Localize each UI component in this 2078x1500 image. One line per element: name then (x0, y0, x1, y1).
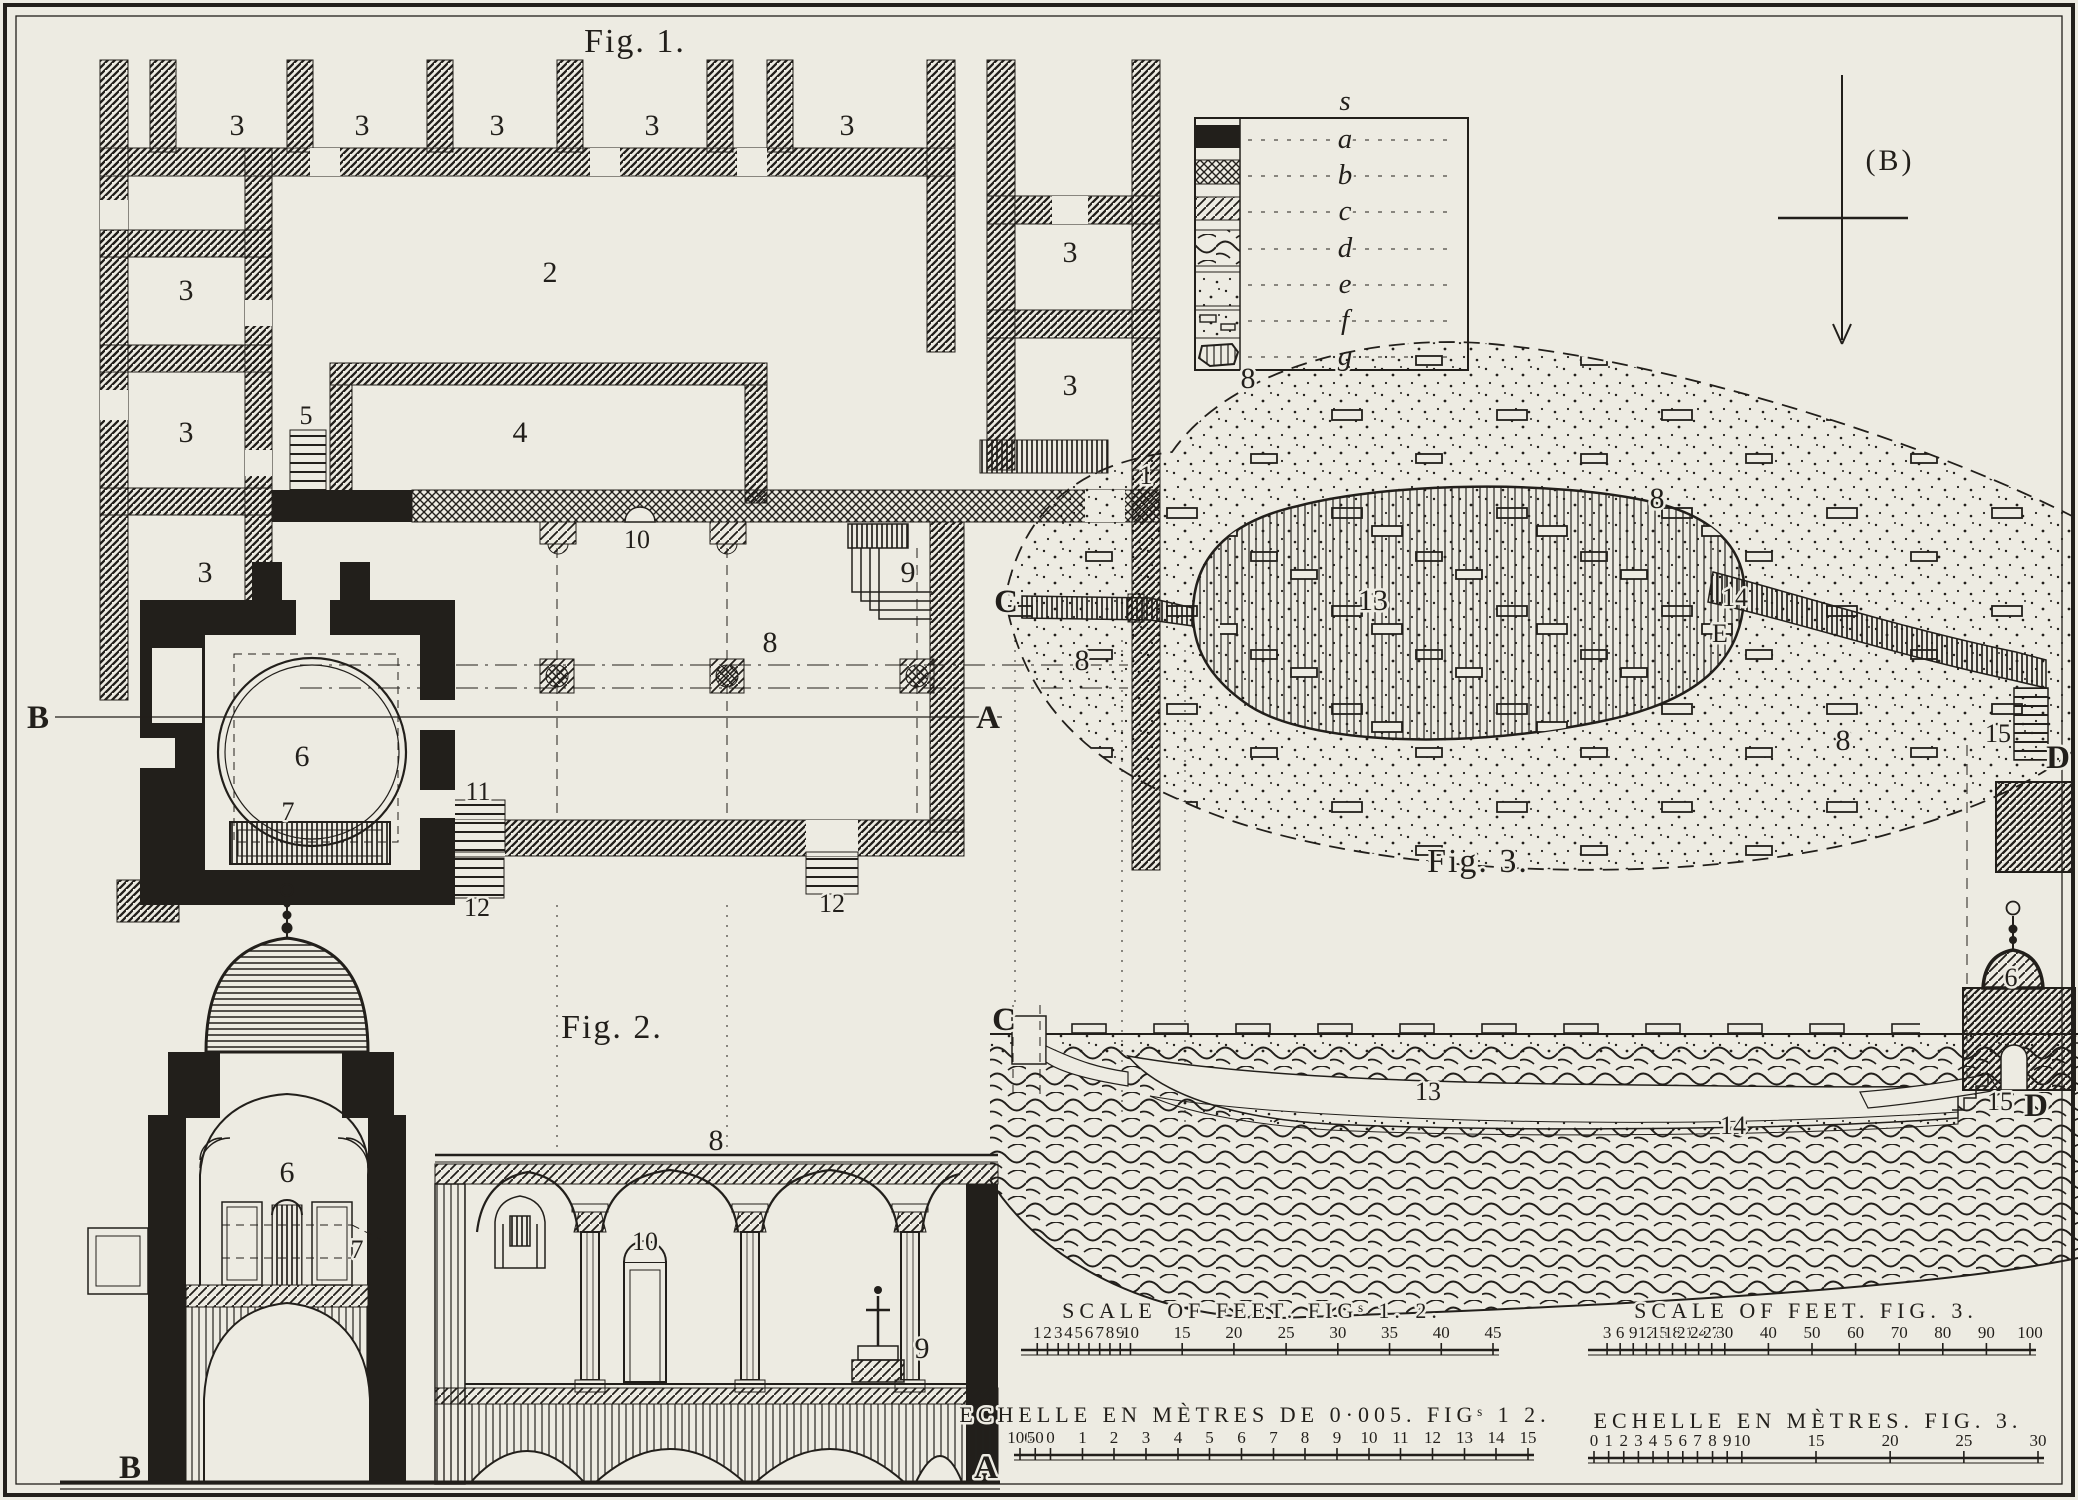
scale-bar-metres12: 100500123456789101112131415 (1007, 1428, 1536, 1460)
marker-D-plan: D (2046, 740, 2070, 776)
room-label-3: 3 (1063, 369, 1078, 402)
legend-letter-c: c (1339, 195, 1352, 227)
scale-bar-feet12: 1234567891015202530354045 (1021, 1323, 1502, 1355)
scale-tick-label: 40 (1760, 1323, 1777, 1342)
scale-bar-metres3: 01234567891015202530 (1588, 1431, 2047, 1463)
compass: (B) (1778, 75, 1915, 344)
section-label-6: 6 (2005, 963, 2018, 992)
room-label-6: 6 (295, 740, 310, 773)
scale-tick-label: 9 (1723, 1431, 1732, 1450)
room-label-10: 10 (624, 525, 650, 554)
legend-swatches (1195, 125, 1240, 366)
fig1-stair-11 (447, 800, 505, 852)
fig3-sluice (1128, 594, 1144, 622)
legend-swatch-e (1195, 272, 1240, 306)
steps-label-15: 15 (1985, 719, 2011, 748)
scale-tick-label: 7 (1095, 1323, 1104, 1342)
fig2-dome-tower (88, 884, 406, 1482)
fig1-stair-5 (290, 430, 326, 496)
marker-E: E (1712, 619, 1728, 648)
scale-tick-label: 7 (1693, 1431, 1702, 1450)
scale-tick-label: 6 (1085, 1323, 1094, 1342)
scale-tick-label: 8 (1301, 1428, 1310, 1447)
scale-title-metres3: ECHELLE EN MÈTRES. FIG. 3. (1594, 1408, 2023, 1433)
room-label-12: 12 (464, 893, 490, 922)
scale-tick-label: 30 (1716, 1323, 1733, 1342)
legend-swatch-b (1195, 160, 1240, 184)
scale-title-metres12: ECHELLE EN MÈTRES DE 0·005. FIGˢ 1 2. (959, 1402, 1550, 1427)
fig3-section-topsoil (990, 1034, 2078, 1056)
section-label-15: 15 (1987, 1087, 2013, 1116)
figure-2-section: Fig. 2. (60, 884, 1000, 1489)
fig1-fountain-7 (230, 822, 390, 864)
fig1-stair-12b (806, 852, 858, 894)
scale-tick-label: 90 (1978, 1323, 1995, 1342)
fig2-niche (495, 1196, 545, 1268)
plate-drawing: Fig. 1. 3 3 3 3 3 3 3 3 3 3 2 4 5 1 10 9… (0, 0, 2078, 1500)
scale-tick-label: 7 (1269, 1428, 1278, 1447)
fig1-title: Fig. 1. (584, 23, 686, 60)
legend-swatch-d (1195, 230, 1240, 266)
scale-tick-label: 25 (1955, 1431, 1972, 1450)
room-label-3: 3 (1063, 236, 1078, 269)
scale-tick-label: 100 (2017, 1323, 2043, 1342)
scale-tick-label: 13 (1456, 1428, 1473, 1447)
room-label-5: 5 (300, 401, 313, 430)
scale-metres-figs12: ECHELLE EN MÈTRES DE 0·005. FIGˢ 1 2. 10… (959, 1402, 1550, 1460)
scale-tick-label: 10 (1360, 1428, 1377, 1447)
legend-swatch-f (1195, 310, 1240, 338)
scale-tick-label: 6 (1237, 1428, 1246, 1447)
fig2-title: Fig. 2. (561, 1009, 663, 1046)
scale-tick-label: 1 (1604, 1431, 1613, 1450)
fig2-marker-A: A (974, 1450, 998, 1486)
legend-swatch-g (1199, 344, 1238, 366)
fig3-steps-15 (2014, 688, 2048, 760)
scale-tick-label: 2 (1043, 1323, 1052, 1342)
fig1-entrance-steps-1 (980, 440, 1108, 473)
legend-swatch-a (1195, 125, 1240, 148)
section-marker-C: C (994, 584, 1018, 620)
scale-tick-label: 2 (1110, 1428, 1119, 1447)
fig1-stair-12a (452, 858, 504, 898)
scale-tick-label: 50 (1804, 1323, 1821, 1342)
pond-label-13: 13 (1358, 584, 1388, 617)
room-label-8: 8 (763, 626, 778, 659)
scale-tick-label: 5 (1074, 1323, 1083, 1342)
legend-swatch-c (1195, 197, 1240, 220)
fig3-section-fountain-house (1963, 902, 2075, 1091)
scale-tick-label: 12 (1424, 1428, 1441, 1447)
ground-label-8: 8 (1836, 724, 1851, 757)
engraving-plate: Fig. 1. 3 3 3 3 3 3 3 3 3 3 2 4 5 1 10 9… (0, 0, 2078, 1500)
scale-tick-label: 0 (1590, 1431, 1599, 1450)
fig2-crypt-arch (204, 1303, 370, 1482)
scale-tick-label: 11 (1392, 1428, 1408, 1447)
figure-1-plan: Fig. 1. 3 3 3 3 3 3 3 3 3 3 2 4 5 1 10 9… (27, 23, 1160, 1150)
scale-tick-label: 25 (1278, 1323, 1295, 1342)
scale-tick-label: 3 (1142, 1428, 1151, 1447)
legend-header: s (1339, 85, 1350, 117)
scale-tick-label: 45 (1485, 1323, 1502, 1342)
scale-tick-label: 70 (1891, 1323, 1908, 1342)
fig2-arcade (435, 1155, 998, 1484)
scale-tick-label: 6 (1679, 1431, 1688, 1450)
section-marker-A: A (976, 700, 1000, 736)
legend-letter-f: f (1341, 304, 1353, 336)
scale-feet-fig3: SCALE OF FEET. FIG. 3. 36912151821242730… (1588, 1298, 2043, 1355)
ground-label-8: 8 (1075, 644, 1090, 677)
fig2-label-9: 9 (915, 1332, 930, 1365)
fig2-inner-door (272, 1205, 302, 1285)
fig2-label-10: 10 (632, 1227, 658, 1256)
room-label-3: 3 (355, 109, 370, 142)
figure-3-section: C 13 14 15 D 6 (990, 902, 2078, 1319)
fig3-corner-structure (1996, 782, 2074, 872)
scale-tick-label: 9 (1629, 1323, 1638, 1342)
scale-tick-label: 3 (1054, 1323, 1063, 1342)
scale-feet-figs12: SCALE OF FEET. FIGˢ 1. 2. 12345678910152… (1021, 1298, 1502, 1355)
fig2-dome (206, 938, 368, 1052)
scale-tick-label: 30 (1329, 1323, 1346, 1342)
scale-tick-label: 4 (1174, 1428, 1183, 1447)
fig2-marker-B: B (119, 1450, 141, 1486)
scale-tick-label: 30 (2030, 1431, 2047, 1450)
scale-bar-feet3: 36912151821242730405060708090100 (1588, 1323, 2043, 1355)
room-label-7: 7 (282, 797, 295, 826)
scale-tick-label: 2 (1619, 1431, 1628, 1450)
scale-tick-label: 5 (1205, 1428, 1214, 1447)
fig2-label-8: 8 (709, 1124, 724, 1157)
room-label-3: 3 (490, 109, 505, 142)
scale-tick-label: 3 (1603, 1323, 1612, 1342)
room-label-3: 3 (840, 109, 855, 142)
scale-tick-label: 15 (1174, 1323, 1191, 1342)
room-label-12: 12 (819, 889, 845, 918)
section-marker-D: D (2024, 1088, 2048, 1124)
legend: s a b c d e f g (1195, 85, 1468, 372)
fig3-section-doorway (2001, 1045, 2027, 1090)
scale-tick-label: 0 (1046, 1428, 1055, 1447)
scale-tick-label: 50 (1027, 1428, 1044, 1447)
fig3-title: Fig. 3. (1427, 843, 1529, 880)
ground-label-8: 8 (1650, 482, 1665, 515)
scale-tick-label: 1 (1078, 1428, 1087, 1447)
fig1-domed-chamber (140, 562, 455, 905)
legend-letter-d: d (1338, 232, 1353, 264)
scale-tick-label: 5 (1664, 1431, 1673, 1450)
scale-tick-label: 9 (1333, 1428, 1342, 1447)
section-label-14: 14 (1720, 1111, 1746, 1140)
section-marker-B: B (27, 700, 49, 736)
scale-tick-label: 80 (1934, 1323, 1951, 1342)
scale-tick-label: 4 (1649, 1431, 1658, 1450)
fig2-label-6: 6 (280, 1156, 295, 1189)
scale-title-feet12: SCALE OF FEET. FIGˢ 1. 2. (1062, 1298, 1442, 1323)
room-label-3: 3 (198, 556, 213, 589)
scale-tick-label: 14 (1487, 1428, 1505, 1447)
fig2-object-9 (852, 1286, 904, 1382)
ground-label-8: 8 (1241, 362, 1256, 395)
section-label-13: 13 (1415, 1077, 1441, 1106)
scale-tick-label: 15 (1520, 1428, 1537, 1447)
scale-tick-label: 35 (1381, 1323, 1398, 1342)
fig2-label-7: 7 (351, 1235, 364, 1264)
scale-tick-label: 15 (1808, 1431, 1825, 1450)
scale-tick-label: 8 (1106, 1323, 1115, 1342)
room-label-11: 11 (465, 777, 490, 806)
scale-tick-label: 8 (1708, 1431, 1717, 1450)
room-label-3: 3 (645, 109, 660, 142)
scale-title-feet3: SCALE OF FEET. FIG. 3. (1634, 1298, 1978, 1323)
room-label-4: 4 (513, 416, 528, 449)
fig2-doorway-10 (624, 1241, 666, 1382)
scale-tick-label: 20 (1882, 1431, 1899, 1450)
compass-label: (B) (1866, 144, 1915, 177)
scale-metres-fig3: ECHELLE EN MÈTRES. FIG. 3. 0123456789101… (1588, 1408, 2047, 1463)
legend-letter-e: e (1339, 268, 1352, 300)
scale-tick-label: 10 (1122, 1323, 1139, 1342)
room-label-3: 3 (179, 274, 194, 307)
room-label-2: 2 (543, 256, 558, 289)
scale-tick-label: 1 (1033, 1323, 1042, 1342)
scale-tick-label: 6 (1616, 1323, 1625, 1342)
aqueduct-label-14: 14 (1722, 583, 1748, 612)
scale-tick-label: 60 (1847, 1323, 1864, 1342)
scale-tick-label: 10 (1733, 1431, 1750, 1450)
scale-tick-label: 4 (1064, 1323, 1073, 1342)
fig3-section-shaft-C (1012, 1016, 1046, 1064)
room-label-3: 3 (179, 416, 194, 449)
legend-letter-a: a (1338, 123, 1353, 155)
section-marker-C2: C (992, 1002, 1016, 1038)
fig1-stair-9 (848, 524, 932, 619)
scale-tick-label: 40 (1433, 1323, 1450, 1342)
scale-tick-label: 20 (1225, 1323, 1242, 1342)
room-label-3: 3 (230, 109, 245, 142)
room-label-9: 9 (901, 556, 916, 589)
legend-letter-b: b (1338, 159, 1353, 191)
scale-tick-label: 3 (1634, 1431, 1643, 1450)
